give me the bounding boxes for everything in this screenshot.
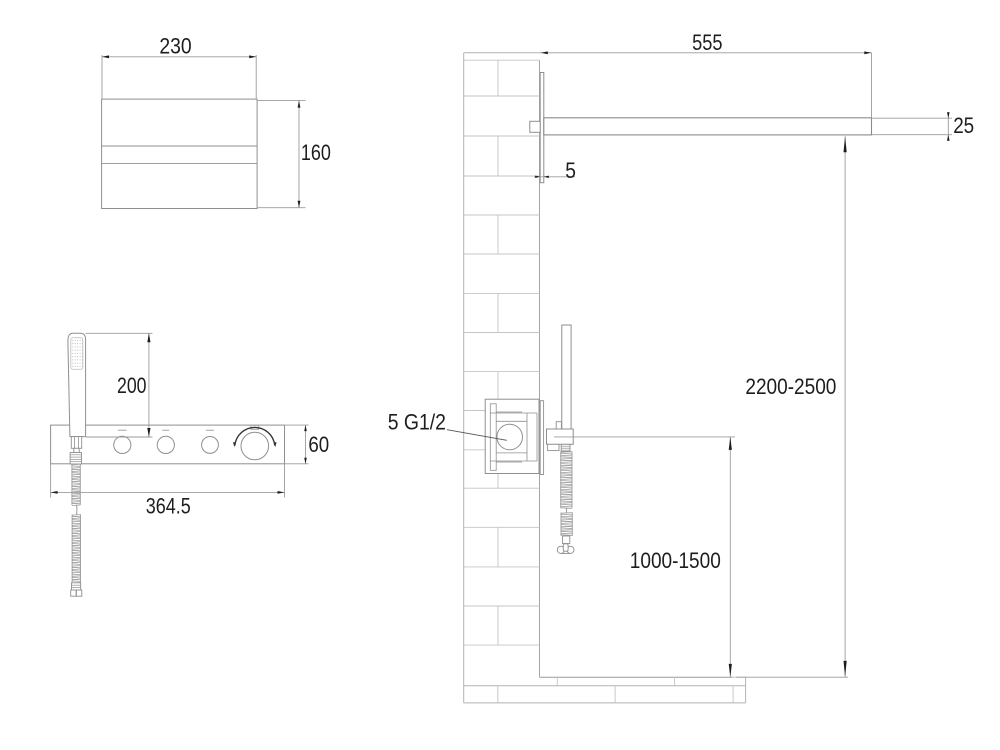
svg-text:160: 160	[301, 140, 331, 165]
svg-text:2200-2500: 2200-2500	[745, 374, 836, 399]
svg-text:5: 5	[565, 158, 576, 183]
svg-text:364.5: 364.5	[146, 494, 191, 519]
svg-text:1000-1500: 1000-1500	[630, 548, 721, 573]
svg-text:230: 230	[159, 33, 191, 58]
svg-text:200: 200	[117, 373, 147, 398]
svg-text:25: 25	[953, 113, 974, 138]
svg-text:60: 60	[308, 432, 329, 457]
svg-text:555: 555	[692, 30, 722, 55]
svg-text:5 G1/2: 5 G1/2	[388, 409, 446, 434]
